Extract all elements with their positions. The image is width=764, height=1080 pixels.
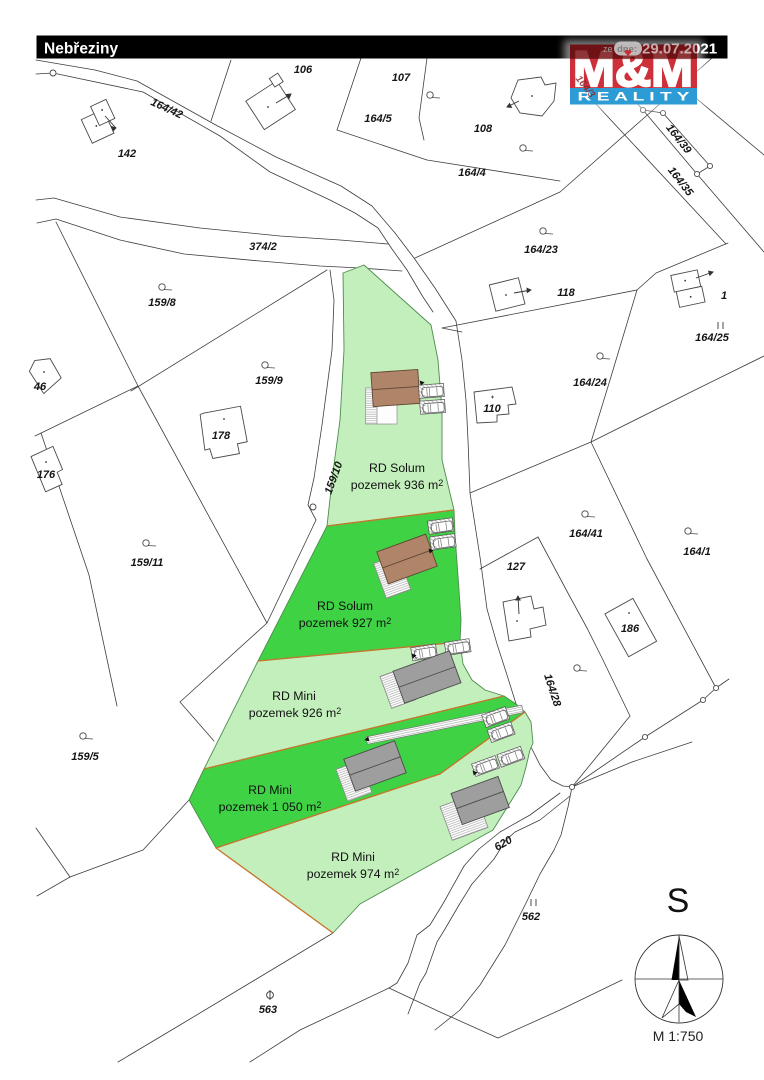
svg-text:142: 142 <box>118 148 136 160</box>
svg-text:620: 620 <box>493 834 516 854</box>
svg-text:pozemek 927 m2: pozemek 927 m2 <box>299 616 392 630</box>
svg-text:186: 186 <box>621 623 640 635</box>
svg-text:159/11: 159/11 <box>131 557 164 569</box>
svg-text:S: S <box>667 882 690 920</box>
svg-text:159/5: 159/5 <box>71 751 99 763</box>
svg-text:108: 108 <box>474 123 493 135</box>
svg-text:M 1:750: M 1:750 <box>653 1028 704 1044</box>
svg-text:164/41: 164/41 <box>569 528 603 540</box>
svg-text:Nebřeziny: Nebřeziny <box>44 41 118 58</box>
svg-text:pozemek 974 m2: pozemek 974 m2 <box>307 867 400 881</box>
svg-text:118: 118 <box>557 287 575 299</box>
svg-text:176: 176 <box>37 469 56 481</box>
svg-text:164/42: 164/42 <box>149 96 185 121</box>
svg-text:pozemek 926 m2: pozemek 926 m2 <box>249 706 342 720</box>
svg-text:164/24: 164/24 <box>573 377 607 389</box>
svg-text:164/35: 164/35 <box>665 165 696 200</box>
svg-text:ze: ze <box>603 44 613 54</box>
svg-text:164/5: 164/5 <box>364 113 392 125</box>
svg-text:159/9: 159/9 <box>255 375 283 387</box>
svg-text:RD Mini: RD Mini <box>272 689 316 703</box>
svg-text:46: 46 <box>33 381 47 393</box>
svg-text:RD Mini: RD Mini <box>331 850 375 864</box>
svg-text:562: 562 <box>522 911 540 923</box>
svg-text:pozemek 936 m2: pozemek 936 m2 <box>351 478 444 492</box>
svg-text:164/28: 164/28 <box>541 672 563 709</box>
svg-text:RD Mini: RD Mini <box>248 783 292 797</box>
svg-text:164/25: 164/25 <box>695 332 730 344</box>
svg-text:RD Solum: RD Solum <box>317 599 373 613</box>
svg-text:164/23: 164/23 <box>524 244 558 256</box>
svg-text:374/2: 374/2 <box>249 241 277 253</box>
svg-text:1: 1 <box>721 290 727 302</box>
svg-text:107: 107 <box>392 72 411 84</box>
svg-text:RD Solum: RD Solum <box>369 461 425 475</box>
svg-text:127: 127 <box>507 561 526 573</box>
svg-text:164/4: 164/4 <box>458 167 486 179</box>
svg-text:pozemek 1 050 m2: pozemek 1 050 m2 <box>219 800 322 814</box>
svg-text:159/8: 159/8 <box>148 297 176 309</box>
svg-text:106: 106 <box>294 64 313 76</box>
svg-text:110: 110 <box>483 403 501 415</box>
svg-text:563: 563 <box>259 1004 277 1016</box>
svg-text:164/1: 164/1 <box>683 546 711 558</box>
svg-text:178: 178 <box>212 430 231 442</box>
